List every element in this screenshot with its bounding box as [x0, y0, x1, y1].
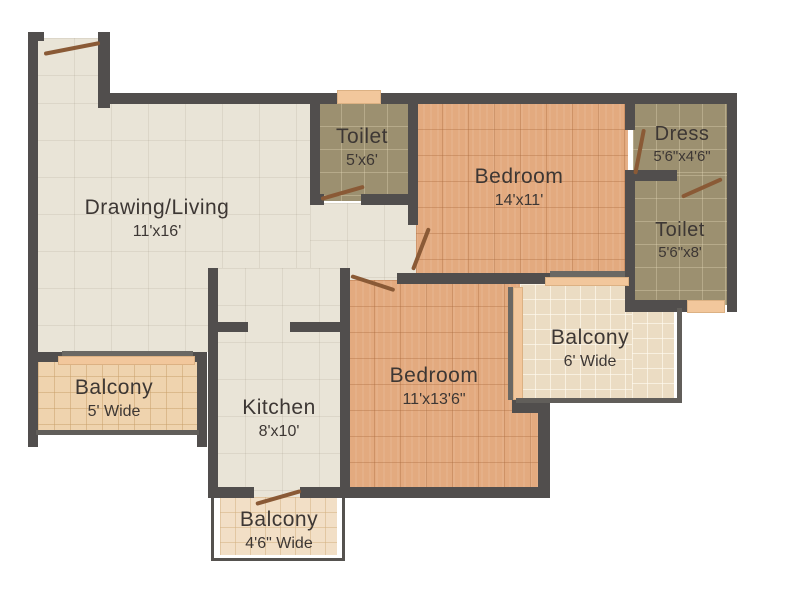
room-name: Balcony: [520, 326, 660, 350]
wall-bottom-a: [208, 487, 254, 498]
wall-bedroom2-right: [538, 400, 550, 498]
window-toilet2: [687, 300, 725, 313]
room-label-kitchen: Kitchen 8'x10': [219, 396, 339, 442]
room-name: Balcony: [216, 508, 342, 532]
room-label-toilet1: Toilet 5'x6': [312, 125, 412, 171]
floor-kitchen: [208, 268, 350, 497]
room-name: Bedroom: [429, 165, 609, 189]
room-dims: 5'6"x8': [630, 244, 730, 261]
wall-topleft-stub: [28, 32, 44, 41]
room-dims: 8'x10': [219, 423, 339, 441]
railing-balcony-bed1-bottom: [516, 398, 682, 403]
wall-left-outer: [28, 32, 38, 447]
room-label-balcony-living: Balcony 5' Wide: [44, 376, 184, 422]
floor-plan: Drawing/Living 11'x16' Toilet 5'x6' Bedr…: [0, 0, 800, 600]
room-name: Balcony: [44, 376, 184, 400]
room-label-bedroom2: Bedroom 11'x13'6": [354, 364, 514, 410]
wall-kitchen-left: [208, 268, 218, 497]
room-dims: 14'x11': [429, 192, 609, 210]
room-label-balcony-kitchen: Balcony 4'6" Wide: [216, 508, 342, 554]
wall-top-a: [108, 93, 340, 104]
room-dims: 11'x13'6": [354, 391, 514, 409]
room-dims: 4'6" Wide: [216, 535, 342, 553]
wall-kitchen-right: [340, 268, 350, 497]
room-label-bedroom1: Bedroom 14'x11': [429, 165, 609, 211]
wall-top-b: [377, 93, 737, 104]
wall-kitchen-entry-a: [218, 322, 248, 332]
room-dims: 5'6"x4'6": [632, 148, 732, 165]
room-label-toilet2: Toilet 5'6"x8': [630, 219, 730, 261]
room-name: Dress: [632, 123, 732, 146]
room-label-drawing-living: Drawing/Living 11'x16': [57, 196, 257, 242]
room-dims: 5'x6': [312, 152, 412, 170]
room-dims: 5' Wide: [44, 403, 184, 421]
room-name: Toilet: [630, 219, 730, 242]
room-name: Kitchen: [219, 396, 339, 420]
room-name: Toilet: [312, 125, 412, 149]
window-bedroom1: [545, 277, 629, 286]
room-label-dress: Dress 5'6"x4'6": [632, 123, 732, 165]
room-dims: 11'x16': [57, 223, 257, 241]
railing-balcony-living: [36, 430, 199, 435]
room-label-balcony-bed1: Balcony 6' Wide: [520, 326, 660, 372]
wall-bottom-b: [300, 487, 550, 498]
window-toilet1: [337, 90, 381, 104]
room-name: Bedroom: [354, 364, 514, 388]
railing-balcony-bed1-right: [677, 308, 682, 403]
room-dims: 6' Wide: [520, 353, 660, 371]
window-living: [58, 356, 195, 365]
wall-kitchen-entry-b: [290, 322, 340, 332]
room-name: Drawing/Living: [57, 196, 257, 220]
wall-bed1-bed2-divider: [397, 273, 552, 284]
